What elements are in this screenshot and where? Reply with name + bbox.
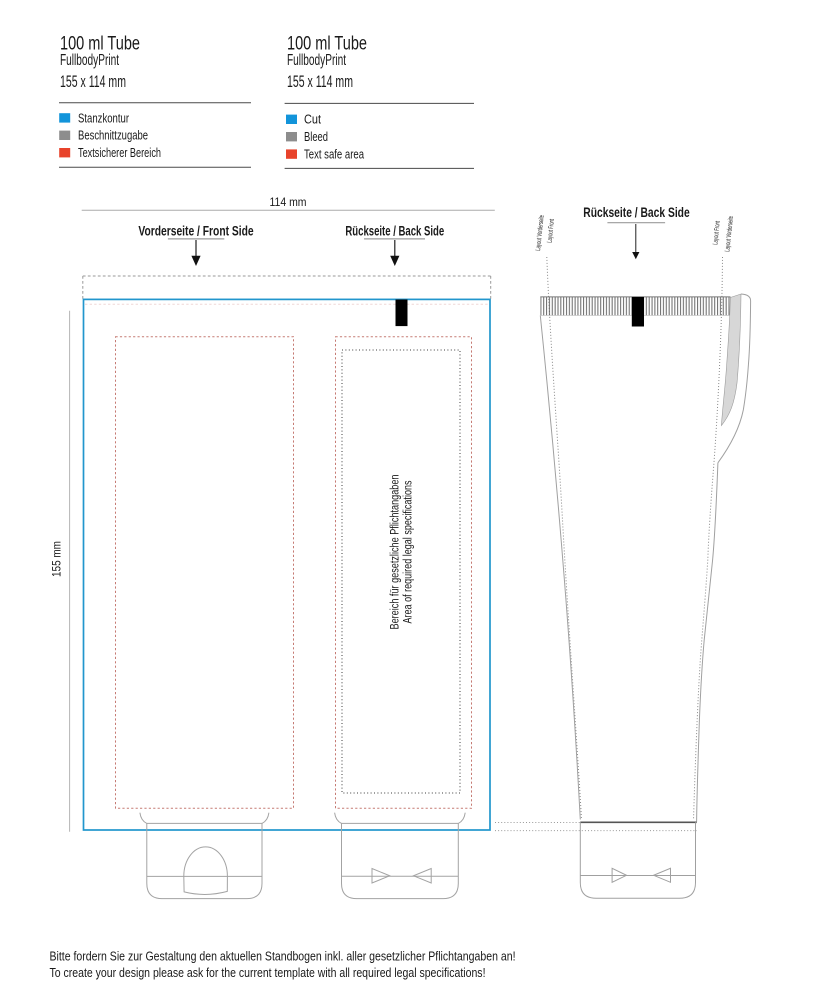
svg-text:Beschnittzugabe: Beschnittzugabe — [78, 128, 148, 143]
svg-text:Stanzkontur: Stanzkontur — [78, 110, 129, 125]
svg-text:Area of required legal specifi: Area of required legal specifications — [403, 480, 415, 623]
svg-text:Cut: Cut — [304, 112, 321, 127]
svg-text:155 x 114 mm: 155 x 114 mm — [60, 72, 126, 91]
svg-text:Layout Front: Layout Front — [712, 221, 721, 246]
svg-text:Text safe area: Text safe area — [304, 147, 365, 162]
svg-text:155 mm: 155 mm — [51, 541, 63, 577]
svg-text:Rückseite / Back Side: Rückseite / Back Side — [345, 223, 444, 238]
svg-text:Layout Vorderseite: Layout Vorderseite — [724, 216, 735, 253]
svg-text:Layout Front: Layout Front — [547, 219, 556, 244]
svg-text:155 x 114 mm: 155 x 114 mm — [287, 72, 353, 91]
svg-text:Layout Vorderseite: Layout Vorderseite — [535, 215, 546, 252]
svg-text:Bereich für gesetzliche Pflich: Bereich für gesetzliche Pflichtangaben — [389, 475, 401, 630]
svg-text:114 mm: 114 mm — [270, 197, 307, 209]
svg-text:Bitte fordern Sie zur Gestaltu: Bitte fordern Sie zur Gestaltung den akt… — [50, 950, 516, 964]
svg-text:FullbodyPrint: FullbodyPrint — [287, 52, 346, 69]
svg-text:To create your design please a: To create your design please ask for the… — [50, 966, 486, 980]
svg-text:FullbodyPrint: FullbodyPrint — [60, 52, 119, 69]
svg-text:Textsicherer Bereich: Textsicherer Bereich — [78, 145, 161, 160]
svg-text:Vorderseite / Front Side: Vorderseite / Front Side — [138, 223, 254, 238]
svg-text:Rückseite / Back Side: Rückseite / Back Side — [583, 204, 690, 220]
svg-text:Bleed: Bleed — [304, 129, 328, 144]
